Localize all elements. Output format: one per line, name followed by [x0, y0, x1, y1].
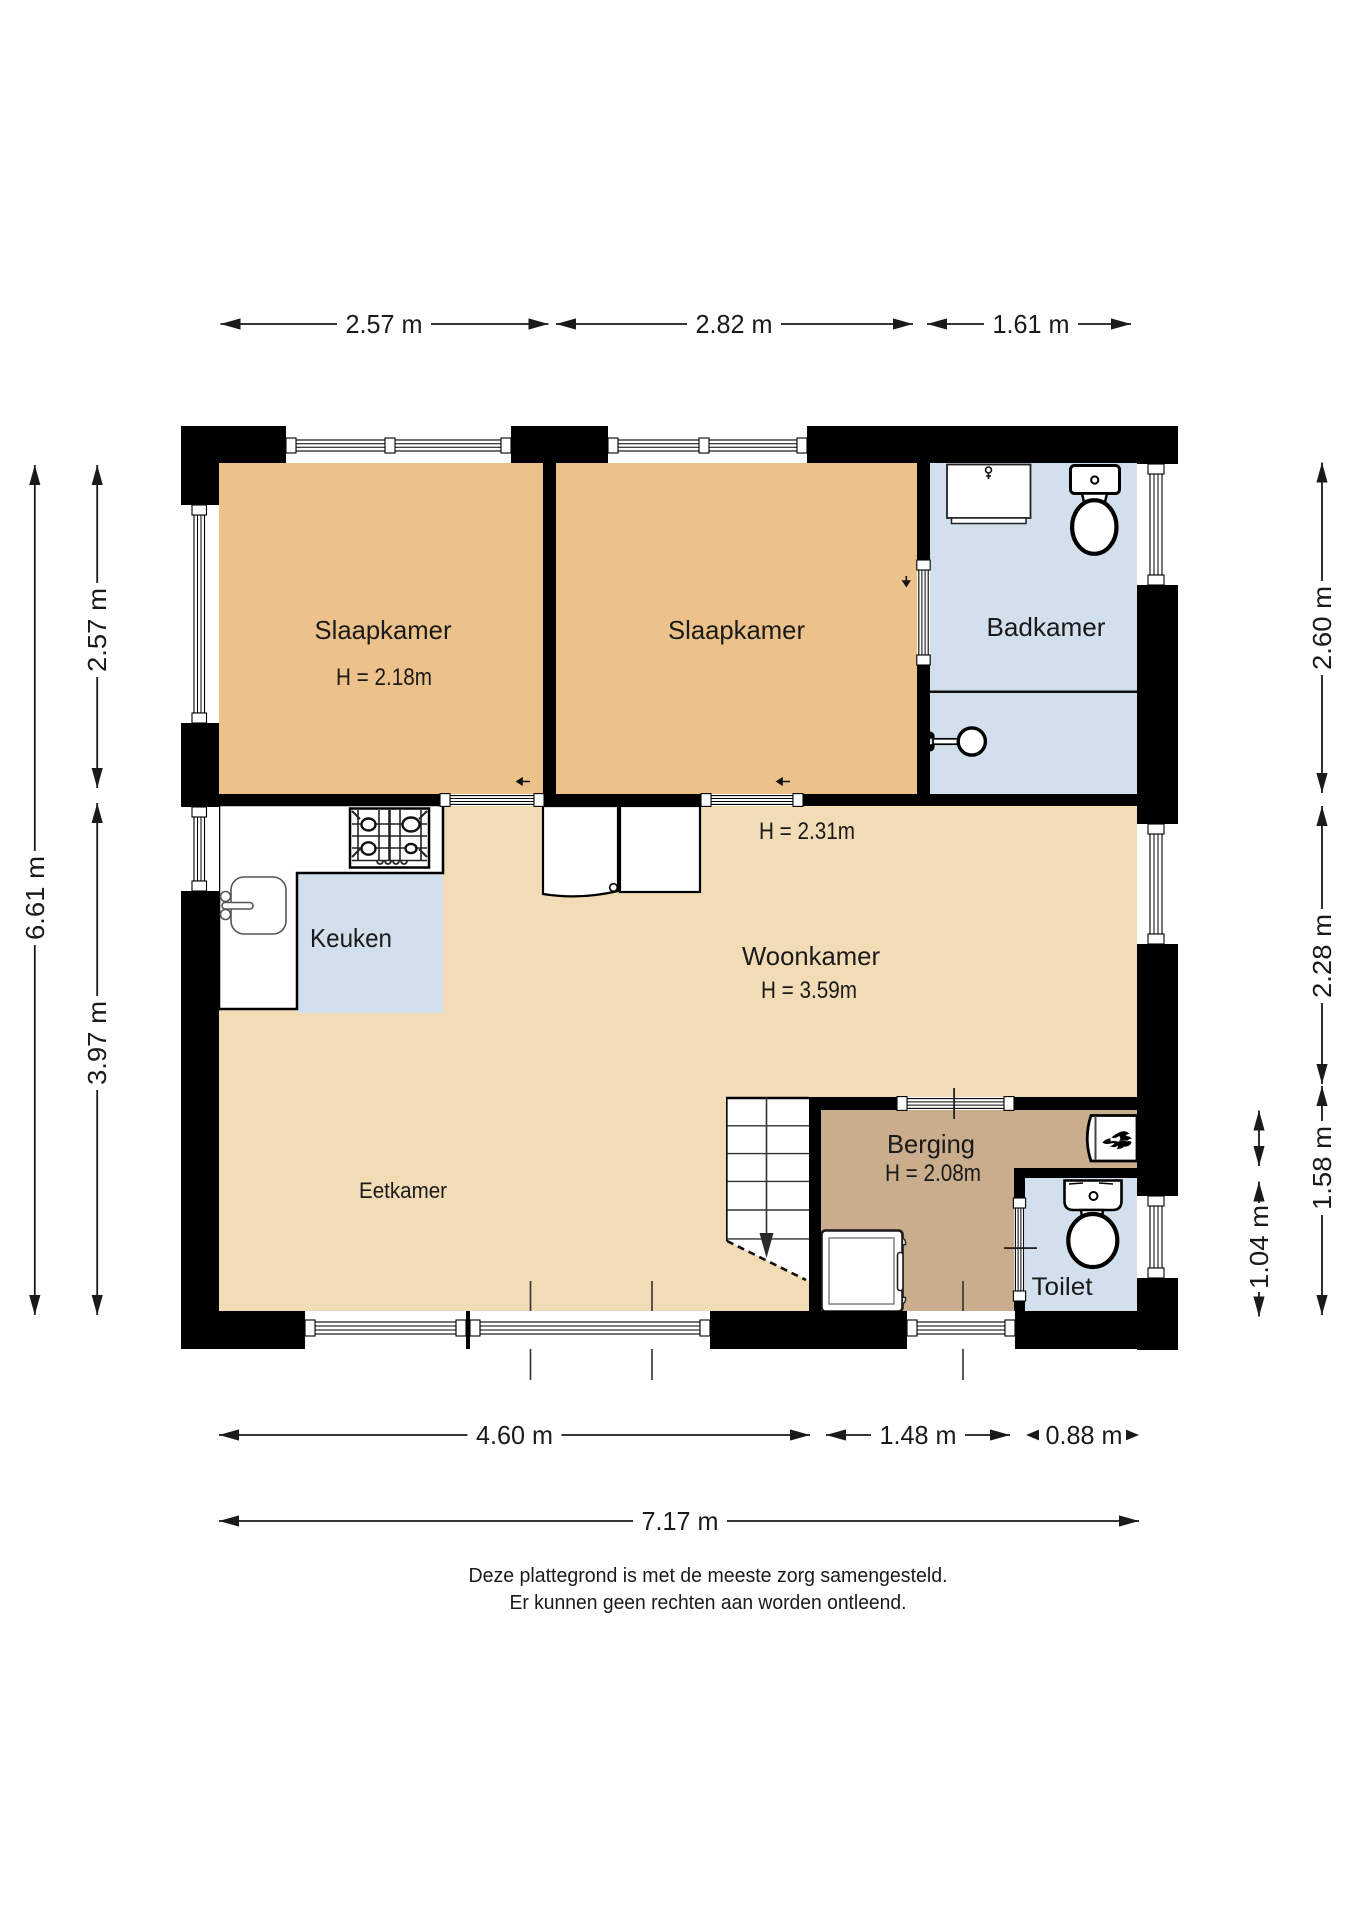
- svg-text:Badkamer: Badkamer: [987, 612, 1106, 642]
- svg-text:Woonkamer: Woonkamer: [742, 941, 880, 971]
- svg-text:2.60 m: 2.60 m: [1307, 586, 1337, 670]
- svg-text:Eetkamer: Eetkamer: [359, 1178, 447, 1203]
- svg-text:2.57 m: 2.57 m: [82, 588, 112, 672]
- svg-text:H = 2.18m: H = 2.18m: [336, 664, 432, 691]
- svg-text:0.88 m: 0.88 m: [1046, 1420, 1123, 1450]
- svg-text:Deze plattegrond is met de mee: Deze plattegrond is met de meeste zorg s…: [469, 1565, 948, 1587]
- svg-text:6.61 m: 6.61 m: [20, 856, 50, 940]
- svg-text:Slaapkamer: Slaapkamer: [668, 615, 805, 645]
- svg-text:1.61 m: 1.61 m: [993, 309, 1070, 339]
- svg-text:H = 2.31m: H = 2.31m: [759, 818, 855, 845]
- svg-text:3.97 m: 3.97 m: [82, 1001, 112, 1085]
- svg-text:1.04 m: 1.04 m: [1244, 1205, 1274, 1289]
- svg-text:Toilet: Toilet: [1032, 1273, 1093, 1301]
- svg-text:1.48 m: 1.48 m: [880, 1420, 957, 1450]
- svg-text:7.17 m: 7.17 m: [642, 1506, 719, 1536]
- svg-text:Slaapkamer: Slaapkamer: [315, 615, 452, 645]
- svg-text:2.57 m: 2.57 m: [346, 309, 423, 339]
- svg-text:2.82 m: 2.82 m: [696, 309, 773, 339]
- svg-text:2.28 m: 2.28 m: [1307, 914, 1337, 998]
- svg-text:H = 3.59m: H = 3.59m: [761, 977, 857, 1004]
- svg-text:Keuken: Keuken: [310, 923, 392, 953]
- svg-text:1.58 m: 1.58 m: [1307, 1126, 1337, 1210]
- svg-text:Berging: Berging: [887, 1129, 975, 1159]
- svg-text:4.60 m: 4.60 m: [476, 1420, 553, 1450]
- svg-text:H = 2.08m: H = 2.08m: [885, 1160, 981, 1187]
- svg-text:Er kunnen geen rechten aan wor: Er kunnen geen rechten aan worden ontlee…: [510, 1592, 907, 1614]
